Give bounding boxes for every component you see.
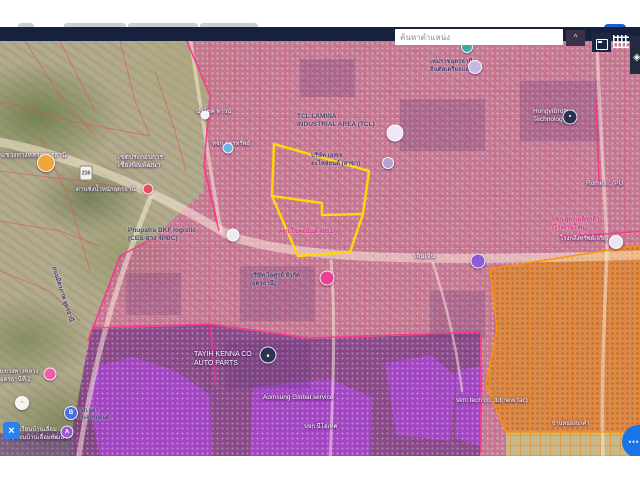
zone-boundary-line — [186, 41, 219, 231]
satellite-parcel-line — [120, 41, 150, 136]
orange-zone-boundary — [486, 269, 640, 432]
layers-icon: ◈ — [633, 52, 640, 63]
highway-shield[interactable]: 216 — [80, 166, 93, 181]
blue-poi[interactable] — [223, 143, 234, 154]
satellite-parcel-line — [0, 221, 100, 246]
tayih-pin[interactable]: • — [260, 347, 277, 364]
red-poi[interactable] — [143, 184, 154, 195]
road — [0, 141, 640, 258]
building-footprint — [300, 59, 355, 97]
search-input[interactable] — [395, 29, 563, 45]
logistic-poi[interactable] — [227, 229, 240, 242]
purple-poi[interactable] — [471, 254, 486, 269]
zone-boundary-line — [210, 324, 216, 386]
map-overlay-graphics — [0, 41, 640, 456]
road — [597, 41, 607, 456]
road — [330, 261, 334, 456]
browser-window: แขวงทางหลวงอุดรธานีเขตประกอบการเชียงพิณพ… — [0, 0, 640, 480]
highway-office-poi[interactable] — [44, 368, 57, 381]
building-footprint — [126, 273, 181, 315]
road — [190, 41, 221, 231]
hongyi-pin[interactable]: • — [563, 110, 578, 125]
overview-map-icon — [596, 39, 608, 50]
collapse-search-button[interactable]: ^ — [566, 30, 585, 46]
zone-boundary-line — [92, 324, 480, 338]
page-bottom-margin — [0, 456, 640, 480]
satellite-parcel-line — [0, 101, 150, 136]
map-canvas[interactable]: แขวงทางหลวงอุดรธานีเขตประกอบการเชียงพิณพ… — [0, 41, 640, 456]
building-footprint — [520, 81, 600, 141]
white-poi-small[interactable] — [201, 111, 210, 120]
pink-company-poi[interactable] — [320, 271, 335, 286]
overview-map-button[interactable] — [592, 33, 611, 52]
road — [78, 193, 152, 456]
parts-poi[interactable] — [382, 157, 394, 169]
zone-boundary-line — [560, 231, 640, 237]
satellite-parcel-line — [25, 41, 95, 136]
selected-parcel-polygon[interactable] — [272, 144, 369, 256]
tcl-poi[interactable] — [387, 125, 404, 142]
satellite-parcel-line — [0, 271, 80, 321]
satellite-parcel-line — [60, 41, 95, 111]
building-footprint — [400, 99, 485, 151]
close-map-tool-button[interactable]: × — [3, 422, 20, 439]
satellite-parcel-line — [155, 71, 186, 171]
temple-poi[interactable] — [37, 154, 55, 172]
measure-grid-icon[interactable] — [613, 35, 629, 48]
building-footprint — [240, 266, 315, 321]
factory-poi[interactable] — [609, 235, 623, 249]
layers-button[interactable]: ◈ — [630, 36, 640, 74]
bank-poi[interactable]: B — [64, 406, 78, 420]
estate-poi[interactable] — [468, 60, 482, 74]
yellow-dot-poi[interactable]: • — [15, 396, 29, 410]
school-poi[interactable]: A — [61, 426, 74, 439]
parcel-divider-line — [272, 196, 363, 215]
